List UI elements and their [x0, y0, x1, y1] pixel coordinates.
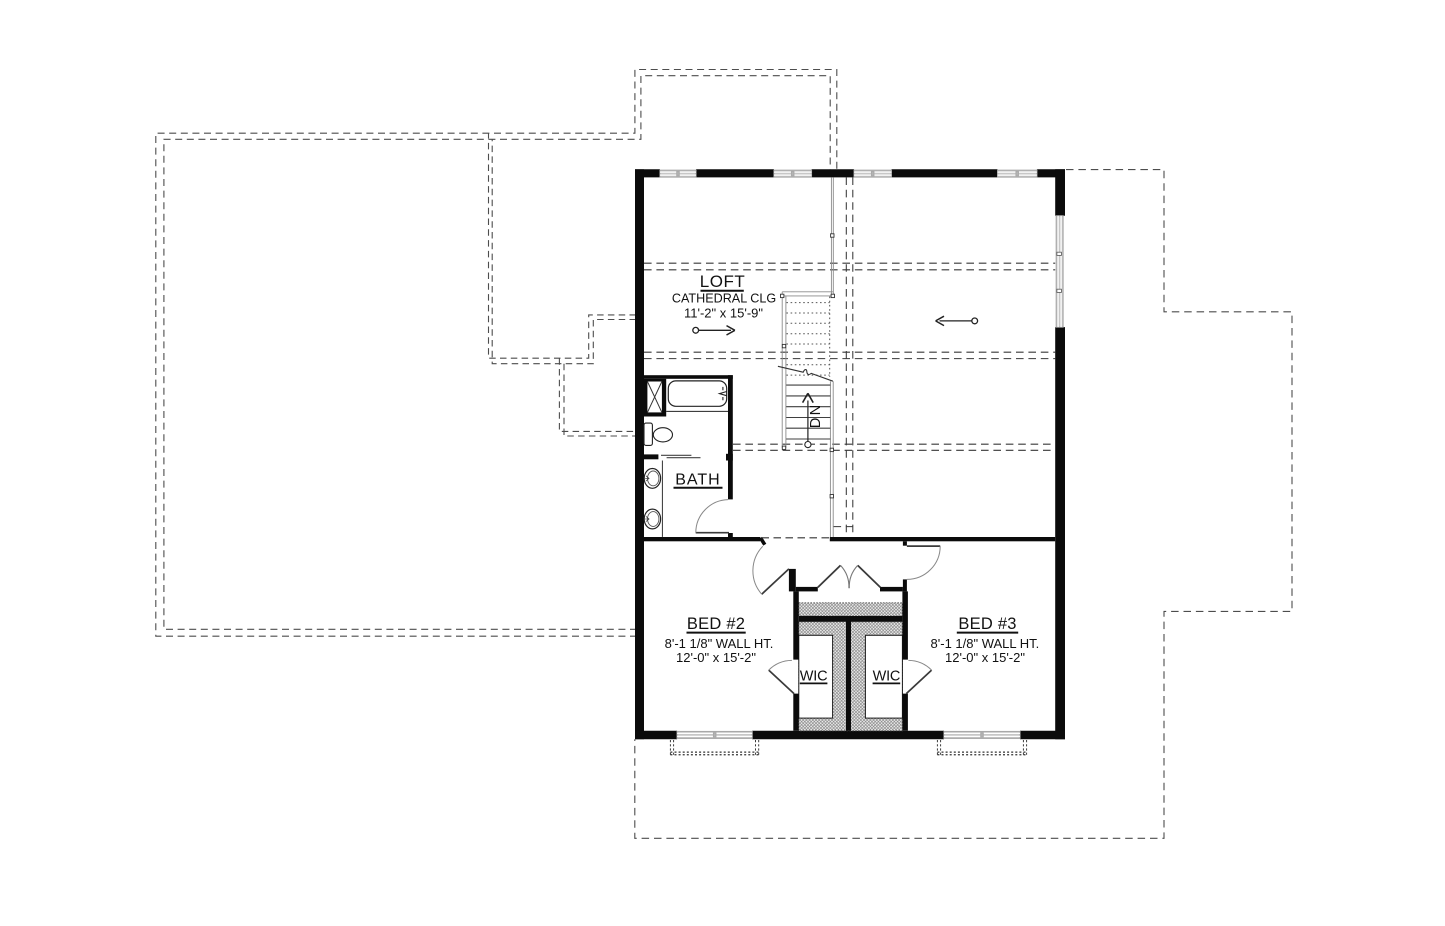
svg-text:CATHEDRAL CLG: CATHEDRAL CLG: [672, 292, 776, 306]
svg-text:12'-0" x 15'-2": 12'-0" x 15'-2": [676, 650, 756, 665]
svg-text:8'-1 1/8" WALL HT.: 8'-1 1/8" WALL HT.: [665, 636, 774, 651]
svg-text:WIC: WIC: [800, 668, 828, 684]
svg-text:12'-0" x 15'-2": 12'-0" x 15'-2": [945, 650, 1025, 665]
svg-text:LOFT: LOFT: [700, 272, 745, 291]
svg-text:BED #2: BED #2: [687, 615, 745, 633]
svg-text:8'-1 1/8" WALL HT.: 8'-1 1/8" WALL HT.: [931, 636, 1040, 651]
svg-text:11'-2" x 15'-9": 11'-2" x 15'-9": [684, 306, 763, 321]
svg-text:BED #3: BED #3: [958, 615, 1016, 633]
svg-text:WIC: WIC: [873, 668, 901, 684]
svg-text:DN: DN: [808, 402, 824, 428]
svg-text:BATH: BATH: [675, 471, 720, 488]
